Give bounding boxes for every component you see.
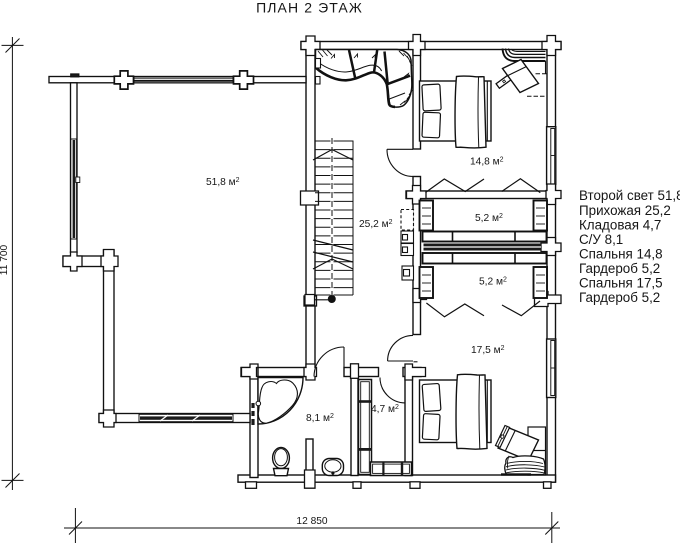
svg-text:5,2 м2: 5,2 м2 <box>475 213 503 224</box>
svg-text:ПЛАН 2 ЭТАЖ: ПЛАН 2 ЭТАЖ <box>256 0 363 16</box>
svg-text:12 850: 12 850 <box>296 516 327 527</box>
svg-text:11 700: 11 700 <box>0 244 10 275</box>
svg-text:Спальня 14,8: Спальня 14,8 <box>579 246 663 261</box>
svg-text:25,2 м2: 25,2 м2 <box>359 219 393 230</box>
svg-text:Второй свет 51,8: Второй свет 51,8 <box>579 188 680 203</box>
svg-text:14,8 м2: 14,8 м2 <box>470 157 504 168</box>
svg-text:Гардероб 5,2: Гардероб 5,2 <box>579 261 660 276</box>
svg-text:Кладовая 4,7: Кладовая 4,7 <box>579 217 661 232</box>
svg-text:Спальня 17,5: Спальня 17,5 <box>579 276 663 291</box>
svg-text:17,5 м2: 17,5 м2 <box>471 345 505 356</box>
svg-text:4,7 м2: 4,7 м2 <box>371 404 399 415</box>
svg-text:Прихожая 25,2: Прихожая 25,2 <box>579 203 671 218</box>
svg-text:51,8 м2: 51,8 м2 <box>206 177 240 188</box>
svg-text:5,2 м2: 5,2 м2 <box>479 277 507 288</box>
svg-text:8,1 м2: 8,1 м2 <box>306 413 334 424</box>
svg-text:Гардероб 5,2: Гардероб 5,2 <box>579 290 660 305</box>
svg-text:С/У 8,1: С/У 8,1 <box>579 232 623 247</box>
